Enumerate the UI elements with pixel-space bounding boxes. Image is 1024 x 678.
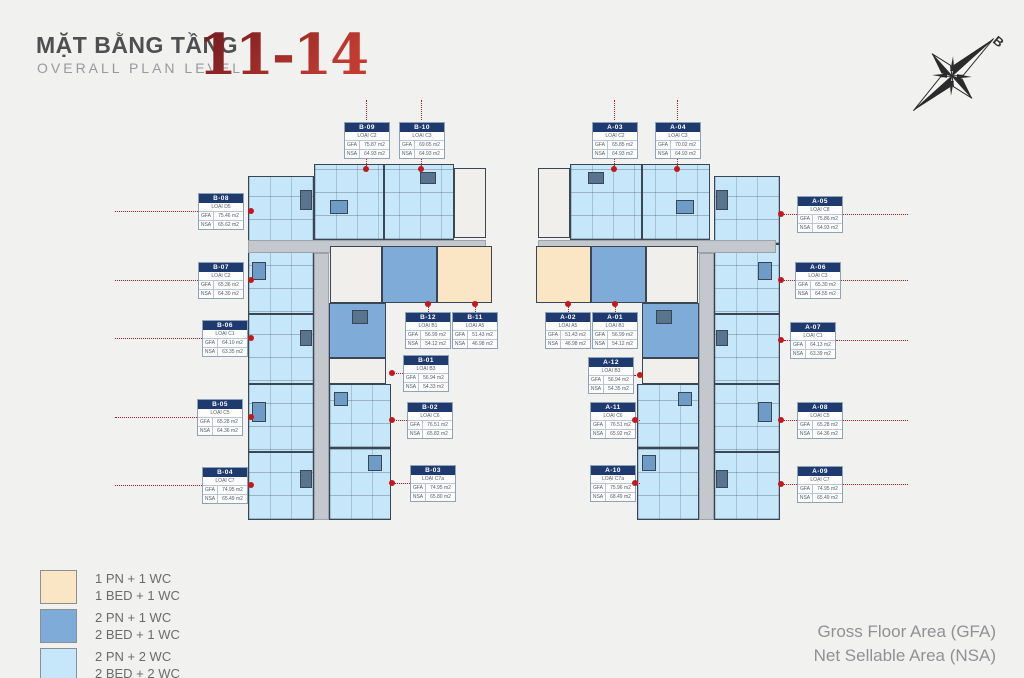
- nsa-value: 64.93 m2: [360, 150, 389, 158]
- unit-callout-a05: A-05 LOẠI C8 GFA75.86 m2 NSA64.93 m2: [797, 196, 843, 233]
- legend-line-en: 2 BED + 2 WC: [95, 666, 180, 678]
- unit-type: LOẠI C1: [203, 330, 247, 339]
- gfa-value: 74.95 m2: [426, 484, 455, 492]
- gfa-value: 76.51 m2: [606, 421, 635, 429]
- unit-id: A-08: [798, 403, 842, 412]
- gfa-value: 65.30 m2: [811, 281, 840, 289]
- nsa-label: NSA: [198, 427, 213, 435]
- leader-line: [784, 420, 797, 421]
- unit-callout-b12: B-12 LOẠI B1 GFA56.99 m2 NSA54.12 m2: [405, 312, 451, 349]
- room-block: [676, 200, 694, 214]
- tower-a-stair-block: [538, 168, 570, 238]
- leader-line: [394, 420, 407, 421]
- unit-type: LOẠI C6: [591, 412, 635, 421]
- gfa-label: GFA: [593, 141, 608, 149]
- nsa-row: NSA65.49 m2: [798, 493, 842, 502]
- legend-item-2bed-1wc: 2 PN + 1 WC 2 BED + 1 WC: [40, 609, 180, 643]
- gfa-row: GFA75.86 m2: [798, 215, 842, 223]
- leader-dot: [248, 208, 254, 214]
- gfa-label: GFA: [345, 141, 360, 149]
- leader-dot: [674, 166, 680, 172]
- unit-id: B-01: [404, 356, 448, 365]
- nsa-row: NSA64.93 m2: [400, 149, 444, 158]
- leader-dot: [389, 417, 395, 423]
- leader-line: [394, 373, 403, 374]
- unit-type: LOẠI B3: [589, 367, 633, 376]
- area-definitions: Gross Floor Area (GFA) Net Sellable Area…: [814, 620, 996, 668]
- room-block: [656, 310, 672, 324]
- gfa-value: 75.46 m2: [214, 212, 243, 220]
- gfa-label: GFA: [404, 374, 419, 382]
- unit-id: B-07: [199, 263, 243, 272]
- leader-dot: [778, 337, 784, 343]
- nsa-value: 63.35 m2: [218, 348, 247, 356]
- nsa-row: NSA54.12 m2: [593, 339, 637, 348]
- room-block: [330, 200, 348, 214]
- unit-type: LOẠI C7a: [591, 475, 635, 484]
- leader-line: [115, 338, 202, 339]
- gfa-value: 65.36 m2: [214, 281, 243, 289]
- gfa-label: GFA: [796, 281, 811, 289]
- unit-id: A-11: [591, 403, 635, 412]
- gfa-label: GFA: [408, 421, 423, 429]
- gfa-value: 75.87 m2: [360, 141, 389, 149]
- leader-line: [115, 485, 202, 486]
- nsa-row: NSA68.49 m2: [591, 492, 635, 501]
- nsa-value: 64.55 m2: [811, 290, 840, 298]
- interior-wall: [715, 383, 779, 385]
- leader-line: [784, 214, 797, 215]
- nsa-label: NSA: [404, 383, 419, 391]
- gfa-label: GFA: [411, 484, 426, 492]
- gfa-row: GFA65.28 m2: [198, 418, 242, 426]
- gfa-label: GFA: [199, 212, 214, 220]
- nsa-label: NSA: [593, 150, 608, 158]
- unit-callout-b02: B-02 LOẠI C6 GFA76.51 m2 NSA65.82 m2: [407, 402, 453, 439]
- room-block: [252, 262, 266, 280]
- tower-b-corridor: [314, 253, 329, 520]
- unit-id: B-11: [453, 313, 497, 322]
- unit-callout-a03: A-03 LOẠI C2 GFA65.85 m2 NSA64.93 m2: [592, 122, 638, 159]
- room-block: [420, 172, 436, 184]
- nsa-row: NSA65.62 m2: [199, 220, 243, 229]
- leader-line: [115, 211, 198, 212]
- unit-callout-b05: B-05 LOẠI C5 GFA65.28 m2 NSA64.36 m2: [197, 399, 243, 436]
- leader-dot: [389, 370, 395, 376]
- gfa-label: GFA: [798, 485, 813, 493]
- legend-line-en: 2 BED + 1 WC: [95, 627, 180, 642]
- unit-callout-a02: A-02 LOẠI A5 GFA51.43 m2 NSA46.98 m2: [545, 312, 591, 349]
- interior-wall: [249, 383, 313, 385]
- unit-type: LOẠI C5: [198, 409, 242, 418]
- unit-id: B-03: [411, 466, 455, 475]
- room-block: [758, 262, 772, 280]
- nsa-value: 64.36 m2: [813, 430, 842, 438]
- nsa-row: NSA64.36 m2: [798, 429, 842, 438]
- room-block: [334, 392, 348, 406]
- nsa-label: NSA: [589, 385, 604, 393]
- gfa-value: 75.96 m2: [606, 484, 635, 492]
- unit-id: A-01: [593, 313, 637, 322]
- gfa-definition: Gross Floor Area (GFA): [814, 620, 996, 644]
- tower-b-core: [330, 246, 382, 303]
- gfa-label: GFA: [589, 376, 604, 384]
- leader-line: [784, 280, 795, 281]
- gfa-value: 51.43 m2: [561, 331, 590, 339]
- floor-plan-page: MẶT BẰNG TẦNG OVERALL PLAN LEVEL 11-14 B: [0, 0, 1024, 678]
- unit-type: LOẠI A5: [546, 322, 590, 331]
- unit-type: LOẠI C7: [203, 477, 247, 486]
- unit-type: LOẠI D5: [199, 203, 243, 212]
- unit-type: LOẠI C2: [199, 272, 243, 281]
- gfa-value: 64.10 m2: [218, 339, 247, 347]
- nsa-value: 65.62 m2: [214, 221, 243, 229]
- leader-dot: [248, 482, 254, 488]
- unit-id: A-06: [796, 263, 840, 272]
- gfa-row: GFA75.87 m2: [345, 141, 389, 149]
- nsa-value: 64.30 m2: [214, 290, 243, 298]
- nsa-value: 63.39 m2: [806, 350, 835, 358]
- nsa-value: 64.36 m2: [213, 427, 242, 435]
- gfa-label: GFA: [199, 281, 214, 289]
- unit-type: LOẠI C3: [400, 132, 444, 141]
- nsa-row: NSA64.30 m2: [199, 289, 243, 298]
- room-block: [716, 470, 728, 488]
- nsa-row: NSA46.98 m2: [546, 339, 590, 348]
- leader-line: [843, 420, 908, 421]
- nsa-label: NSA: [798, 224, 813, 232]
- nsa-label: NSA: [199, 221, 214, 229]
- interior-wall: [715, 313, 779, 315]
- gfa-row: GFA64.13 m2: [791, 341, 835, 349]
- gfa-value: 75.86 m2: [813, 215, 842, 223]
- unit-callout-b08: B-08 LOẠI D5 GFA75.46 m2 NSA65.62 m2: [198, 193, 244, 230]
- gfa-value: 56.99 m2: [608, 331, 637, 339]
- nsa-value: 64.93 m2: [813, 224, 842, 232]
- nsa-label: NSA: [591, 430, 606, 438]
- nsa-value: 65.80 m2: [426, 493, 455, 501]
- nsa-label: NSA: [796, 290, 811, 298]
- leader-line: [841, 280, 908, 281]
- gfa-label: GFA: [203, 339, 218, 347]
- unit-callout-a08: A-08 LOẠI C5 GFA65.28 m2 NSA64.36 m2: [797, 402, 843, 439]
- room-block: [300, 470, 312, 488]
- unit-callout-a06: A-06 LOẠI C3 GFA65.30 m2 NSA64.55 m2: [795, 262, 841, 299]
- leader-line: [115, 280, 198, 281]
- unit-callout-b01: B-01 LOẠI B3 GFA56.94 m2 NSA54.33 m2: [403, 355, 449, 392]
- leader-dot: [565, 301, 571, 307]
- leader-line: [843, 484, 908, 485]
- leader-dot: [472, 301, 478, 307]
- unit-callout-b11: B-11 LOẠI A5 GFA51.43 m2 NSA46.98 m2: [452, 312, 498, 349]
- compass-north-label: B: [990, 33, 1007, 51]
- nsa-label: NSA: [411, 493, 426, 501]
- legend-line-vi: 2 PN + 1 WC: [95, 610, 171, 625]
- unit-type: LOẠI B1: [406, 322, 450, 331]
- legend-label: 2 PN + 1 WC 2 BED + 1 WC: [95, 609, 180, 643]
- unit-id: A-07: [791, 323, 835, 332]
- nsa-label: NSA: [408, 430, 423, 438]
- unit-callout-a09: A-09 LOẠI C7 GFA74.95 m2 NSA65.49 m2: [797, 466, 843, 503]
- unit-type: LOẠI C7: [798, 476, 842, 485]
- unit-type: LOẠI C6: [408, 412, 452, 421]
- nsa-value: 65.92 m2: [606, 430, 635, 438]
- nsa-label: NSA: [593, 340, 608, 348]
- gfa-row: GFA75.46 m2: [199, 212, 243, 220]
- nsa-row: NSA54.35 m2: [589, 384, 633, 393]
- nsa-value: 46.98 m2: [561, 340, 590, 348]
- leader-dot: [389, 480, 395, 486]
- interior-wall: [249, 451, 313, 453]
- nsa-row: NSA64.93 m2: [593, 149, 637, 158]
- gfa-row: GFA75.96 m2: [591, 484, 635, 492]
- gfa-row: GFA56.99 m2: [406, 331, 450, 339]
- gfa-value: 65.28 m2: [813, 421, 842, 429]
- nsa-label: NSA: [791, 350, 806, 358]
- gfa-value: 56.99 m2: [421, 331, 450, 339]
- gfa-value: 76.51 m2: [423, 421, 452, 429]
- gfa-row: GFA51.43 m2: [453, 331, 497, 339]
- gfa-value: 70.02 m2: [671, 141, 700, 149]
- gfa-value: 65.85 m2: [608, 141, 637, 149]
- unit-type: LOẠI C2: [345, 132, 389, 141]
- gfa-label: GFA: [593, 331, 608, 339]
- leader-dot: [632, 480, 638, 486]
- gfa-row: GFA56.94 m2: [589, 376, 633, 384]
- gfa-label: GFA: [798, 215, 813, 223]
- compass-rose: B: [900, 14, 1010, 139]
- gfa-row: GFA65.85 m2: [593, 141, 637, 149]
- nsa-row: NSA54.33 m2: [404, 382, 448, 391]
- leader-dot: [778, 417, 784, 423]
- nsa-label: NSA: [798, 494, 813, 502]
- unit-id: B-10: [400, 123, 444, 132]
- nsa-value: 65.49 m2: [813, 494, 842, 502]
- nsa-label: NSA: [203, 495, 218, 503]
- leader-dot: [611, 166, 617, 172]
- interior-wall: [641, 165, 643, 239]
- legend: 1 PN + 1 WC 1 BED + 1 WC 2 PN + 1 WC 2 B…: [40, 570, 180, 678]
- nsa-value: 68.49 m2: [606, 493, 635, 501]
- unit-callout-b09: B-09 LOẠI C2 GFA75.87 m2 NSA64.93 m2: [344, 122, 390, 159]
- nsa-row: NSA63.39 m2: [791, 349, 835, 358]
- gfa-row: GFA56.99 m2: [593, 331, 637, 339]
- unit-callout-a12: A-12 LOẠI B3 GFA56.94 m2 NSA54.35 m2: [588, 357, 634, 394]
- gfa-row: GFA74.95 m2: [411, 484, 455, 492]
- leader-line: [115, 417, 197, 418]
- nsa-value: 64.93 m2: [671, 150, 700, 158]
- tower-a-corridor: [699, 253, 714, 520]
- leader-dot: [418, 166, 424, 172]
- nsa-row: NSA64.36 m2: [198, 426, 242, 435]
- nsa-label: NSA: [591, 493, 606, 501]
- compass-star-icon: B: [900, 14, 1010, 134]
- legend-line-vi: 2 PN + 2 WC: [95, 649, 171, 664]
- leader-dot: [778, 211, 784, 217]
- nsa-row: NSA65.92 m2: [591, 429, 635, 438]
- nsa-row: NSA46.98 m2: [453, 339, 497, 348]
- gfa-value: 74.95 m2: [218, 486, 247, 494]
- leader-line: [394, 483, 410, 484]
- room-block: [758, 402, 772, 422]
- tower-b-left-wing: [248, 176, 314, 520]
- unit-type: LOẠI C1: [791, 332, 835, 341]
- unit-callout-b07: B-07 LOẠI C2 GFA65.36 m2 NSA64.30 m2: [198, 262, 244, 299]
- unit-type: LOẠI A5: [453, 322, 497, 331]
- interior-wall: [715, 451, 779, 453]
- legend-item-2bed-2wc: 2 PN + 2 WC 2 BED + 2 WC: [40, 648, 180, 678]
- unit-block-a01: [591, 246, 646, 303]
- gfa-row: GFA76.51 m2: [408, 421, 452, 429]
- leader-line: [366, 100, 367, 120]
- unit-callout-b03: B-03 LOẠI C7a GFA74.95 m2 NSA65.80 m2: [410, 465, 456, 502]
- nsa-label: NSA: [400, 150, 415, 158]
- nsa-row: NSA54.12 m2: [406, 339, 450, 348]
- nsa-value: 54.12 m2: [421, 340, 450, 348]
- nsa-value: 65.82 m2: [423, 430, 452, 438]
- gfa-value: 69.65 m2: [415, 141, 444, 149]
- unit-id: A-05: [798, 197, 842, 206]
- nsa-value: 54.35 m2: [604, 385, 633, 393]
- unit-id: B-02: [408, 403, 452, 412]
- gfa-label: GFA: [406, 331, 421, 339]
- gfa-value: 74.95 m2: [813, 485, 842, 493]
- unit-id: B-09: [345, 123, 389, 132]
- nsa-label: NSA: [656, 150, 671, 158]
- unit-id: B-12: [406, 313, 450, 322]
- unit-id: A-02: [546, 313, 590, 322]
- nsa-row: NSA65.82 m2: [408, 429, 452, 438]
- room-block: [588, 172, 604, 184]
- legend-line-en: 1 BED + 1 WC: [95, 588, 180, 603]
- unit-block-b11: [437, 246, 492, 303]
- gfa-row: GFA69.65 m2: [400, 141, 444, 149]
- unit-type: LOẠI C2: [593, 132, 637, 141]
- leader-line: [836, 340, 908, 341]
- nsa-label: NSA: [199, 290, 214, 298]
- nsa-value: 64.93 m2: [608, 150, 637, 158]
- unit-id: B-05: [198, 400, 242, 409]
- gfa-row: GFA65.36 m2: [199, 281, 243, 289]
- tower-a-core: [646, 246, 698, 303]
- gfa-label: GFA: [591, 484, 606, 492]
- nsa-row: NSA65.80 m2: [411, 492, 455, 501]
- legend-label: 2 PN + 2 WC 2 BED + 2 WC: [95, 648, 180, 678]
- gfa-row: GFA51.43 m2: [546, 331, 590, 339]
- legend-item-1bed: 1 PN + 1 WC 1 BED + 1 WC: [40, 570, 180, 604]
- unit-callout-a04: A-04 LOẠI C3 GFA70.02 m2 NSA64.93 m2: [655, 122, 701, 159]
- nsa-label: NSA: [203, 348, 218, 356]
- nsa-row: NSA64.55 m2: [796, 289, 840, 298]
- tower-a-right-wing: [714, 176, 780, 520]
- unit-id: A-10: [591, 466, 635, 475]
- nsa-row: NSA63.35 m2: [203, 347, 247, 356]
- gfa-label: GFA: [798, 421, 813, 429]
- tower-b-mid-core: [329, 358, 386, 384]
- gfa-label: GFA: [203, 486, 218, 494]
- room-block: [252, 402, 266, 422]
- gfa-label: GFA: [656, 141, 671, 149]
- unit-callout-a01: A-01 LOẠI B1 GFA56.99 m2 NSA54.12 m2: [592, 312, 638, 349]
- unit-callout-a10: A-10 LOẠI C7a GFA75.96 m2 NSA68.49 m2: [590, 465, 636, 502]
- gfa-row: GFA70.02 m2: [656, 141, 700, 149]
- leader-dot: [248, 335, 254, 341]
- gfa-row: GFA65.28 m2: [798, 421, 842, 429]
- unit-type: LOẠI C3: [656, 132, 700, 141]
- legend-swatch-2bed-2wc: [40, 648, 77, 678]
- room-block: [716, 330, 728, 346]
- leader-dot: [248, 277, 254, 283]
- nsa-row: NSA64.93 m2: [345, 149, 389, 158]
- leader-dot: [778, 277, 784, 283]
- legend-line-vi: 1 PN + 1 WC: [95, 571, 171, 586]
- leader-line: [843, 214, 908, 215]
- legend-swatch-1bed-1wc: [40, 570, 77, 604]
- nsa-label: NSA: [345, 150, 360, 158]
- gfa-label: GFA: [546, 331, 561, 339]
- unit-id: A-03: [593, 123, 637, 132]
- unit-callout-b06: B-06 LOẠI C1 GFA64.10 m2 NSA63.35 m2: [202, 320, 248, 357]
- leader-dot: [363, 166, 369, 172]
- unit-callout-b04: B-04 LOẠI C7 GFA74.95 m2 NSA65.49 m2: [202, 467, 248, 504]
- room-block: [716, 190, 728, 210]
- gfa-label: GFA: [791, 341, 806, 349]
- unit-callout-a07: A-07 LOẠI C1 GFA64.13 m2 NSA63.39 m2: [790, 322, 836, 359]
- gfa-label: GFA: [198, 418, 213, 426]
- leader-line: [614, 100, 615, 120]
- gfa-label: GFA: [591, 421, 606, 429]
- unit-type: LOẠI C3: [796, 272, 840, 281]
- leader-line: [677, 100, 678, 120]
- room-block: [300, 190, 312, 210]
- unit-id: B-04: [203, 468, 247, 477]
- tower-b-stair-block: [454, 168, 486, 238]
- interior-wall: [249, 313, 313, 315]
- leader-dot: [632, 417, 638, 423]
- interior-wall: [383, 165, 385, 239]
- room-block: [352, 310, 368, 324]
- leader-dot: [425, 301, 431, 307]
- gfa-value: 65.28 m2: [213, 418, 242, 426]
- unit-id: A-09: [798, 467, 842, 476]
- unit-type: LOẠI B3: [404, 365, 448, 374]
- nsa-label: NSA: [406, 340, 421, 348]
- gfa-value: 51.43 m2: [468, 331, 497, 339]
- leader-dot: [612, 301, 618, 307]
- unit-id: A-04: [656, 123, 700, 132]
- unit-callout-a11: A-11 LOẠI C6 GFA76.51 m2 NSA65.92 m2: [590, 402, 636, 439]
- unit-block-b12: [382, 246, 437, 303]
- gfa-row: GFA76.51 m2: [591, 421, 635, 429]
- nsa-value: 54.33 m2: [419, 383, 448, 391]
- legend-label: 1 PN + 1 WC 1 BED + 1 WC: [95, 570, 180, 604]
- unit-id: A-12: [589, 358, 633, 367]
- gfa-label: GFA: [400, 141, 415, 149]
- room-block: [368, 455, 382, 471]
- legend-swatch-2bed-1wc: [40, 609, 77, 643]
- room-block: [678, 392, 692, 406]
- nsa-value: 54.12 m2: [608, 340, 637, 348]
- nsa-value: 64.93 m2: [415, 150, 444, 158]
- unit-block-a02: [536, 246, 591, 303]
- nsa-row: NSA64.93 m2: [656, 149, 700, 158]
- unit-type: LOẠI B1: [593, 322, 637, 331]
- gfa-row: GFA74.95 m2: [798, 485, 842, 493]
- gfa-value: 56.94 m2: [604, 376, 633, 384]
- gfa-label: GFA: [453, 331, 468, 339]
- nsa-row: NSA64.93 m2: [798, 223, 842, 232]
- nsa-label: NSA: [453, 340, 468, 348]
